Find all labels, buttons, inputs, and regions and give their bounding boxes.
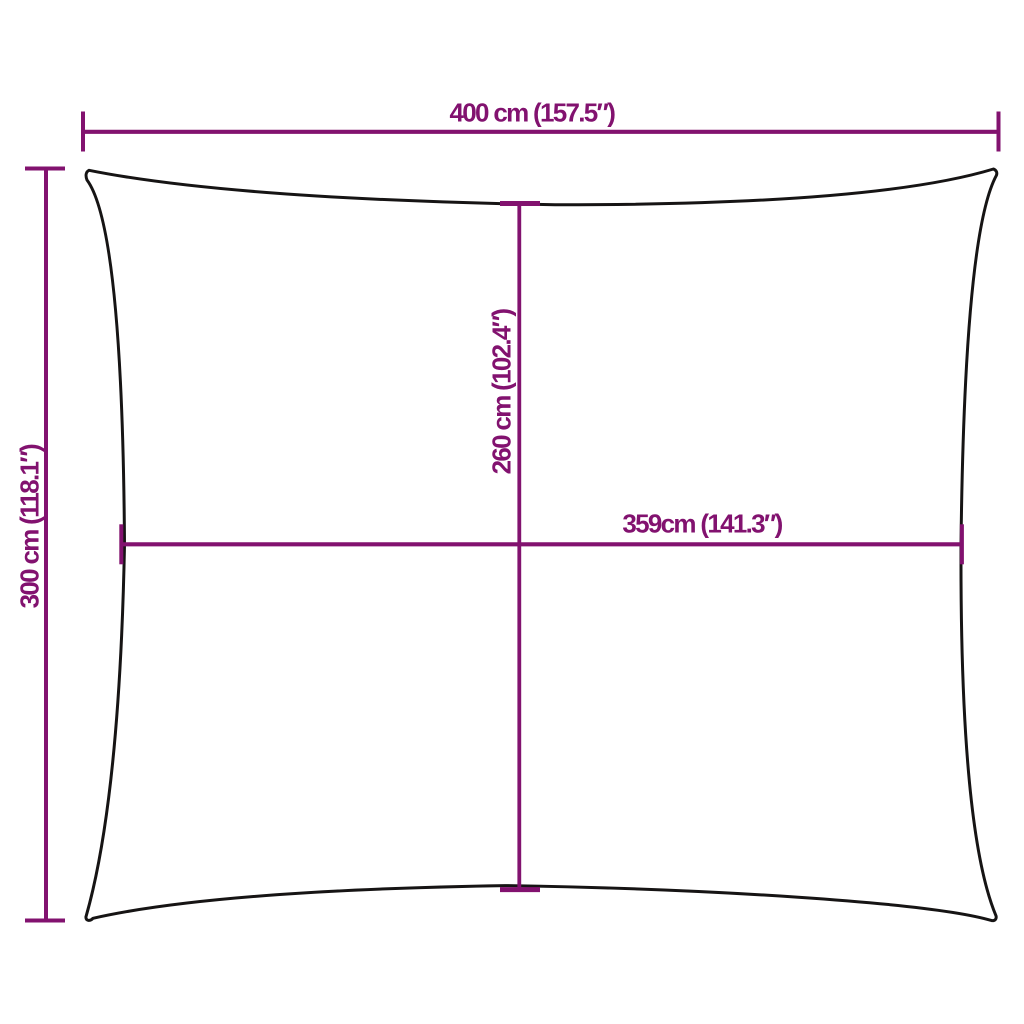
svg-text:400 cm (157.5″): 400 cm (157.5″)	[450, 97, 616, 127]
svg-text:359cm (141.3″): 359cm (141.3″)	[622, 508, 782, 538]
svg-text:300 cm (118.1″): 300 cm (118.1″)	[15, 444, 45, 608]
svg-text:260 cm (102.4″): 260 cm (102.4″)	[487, 309, 517, 475]
